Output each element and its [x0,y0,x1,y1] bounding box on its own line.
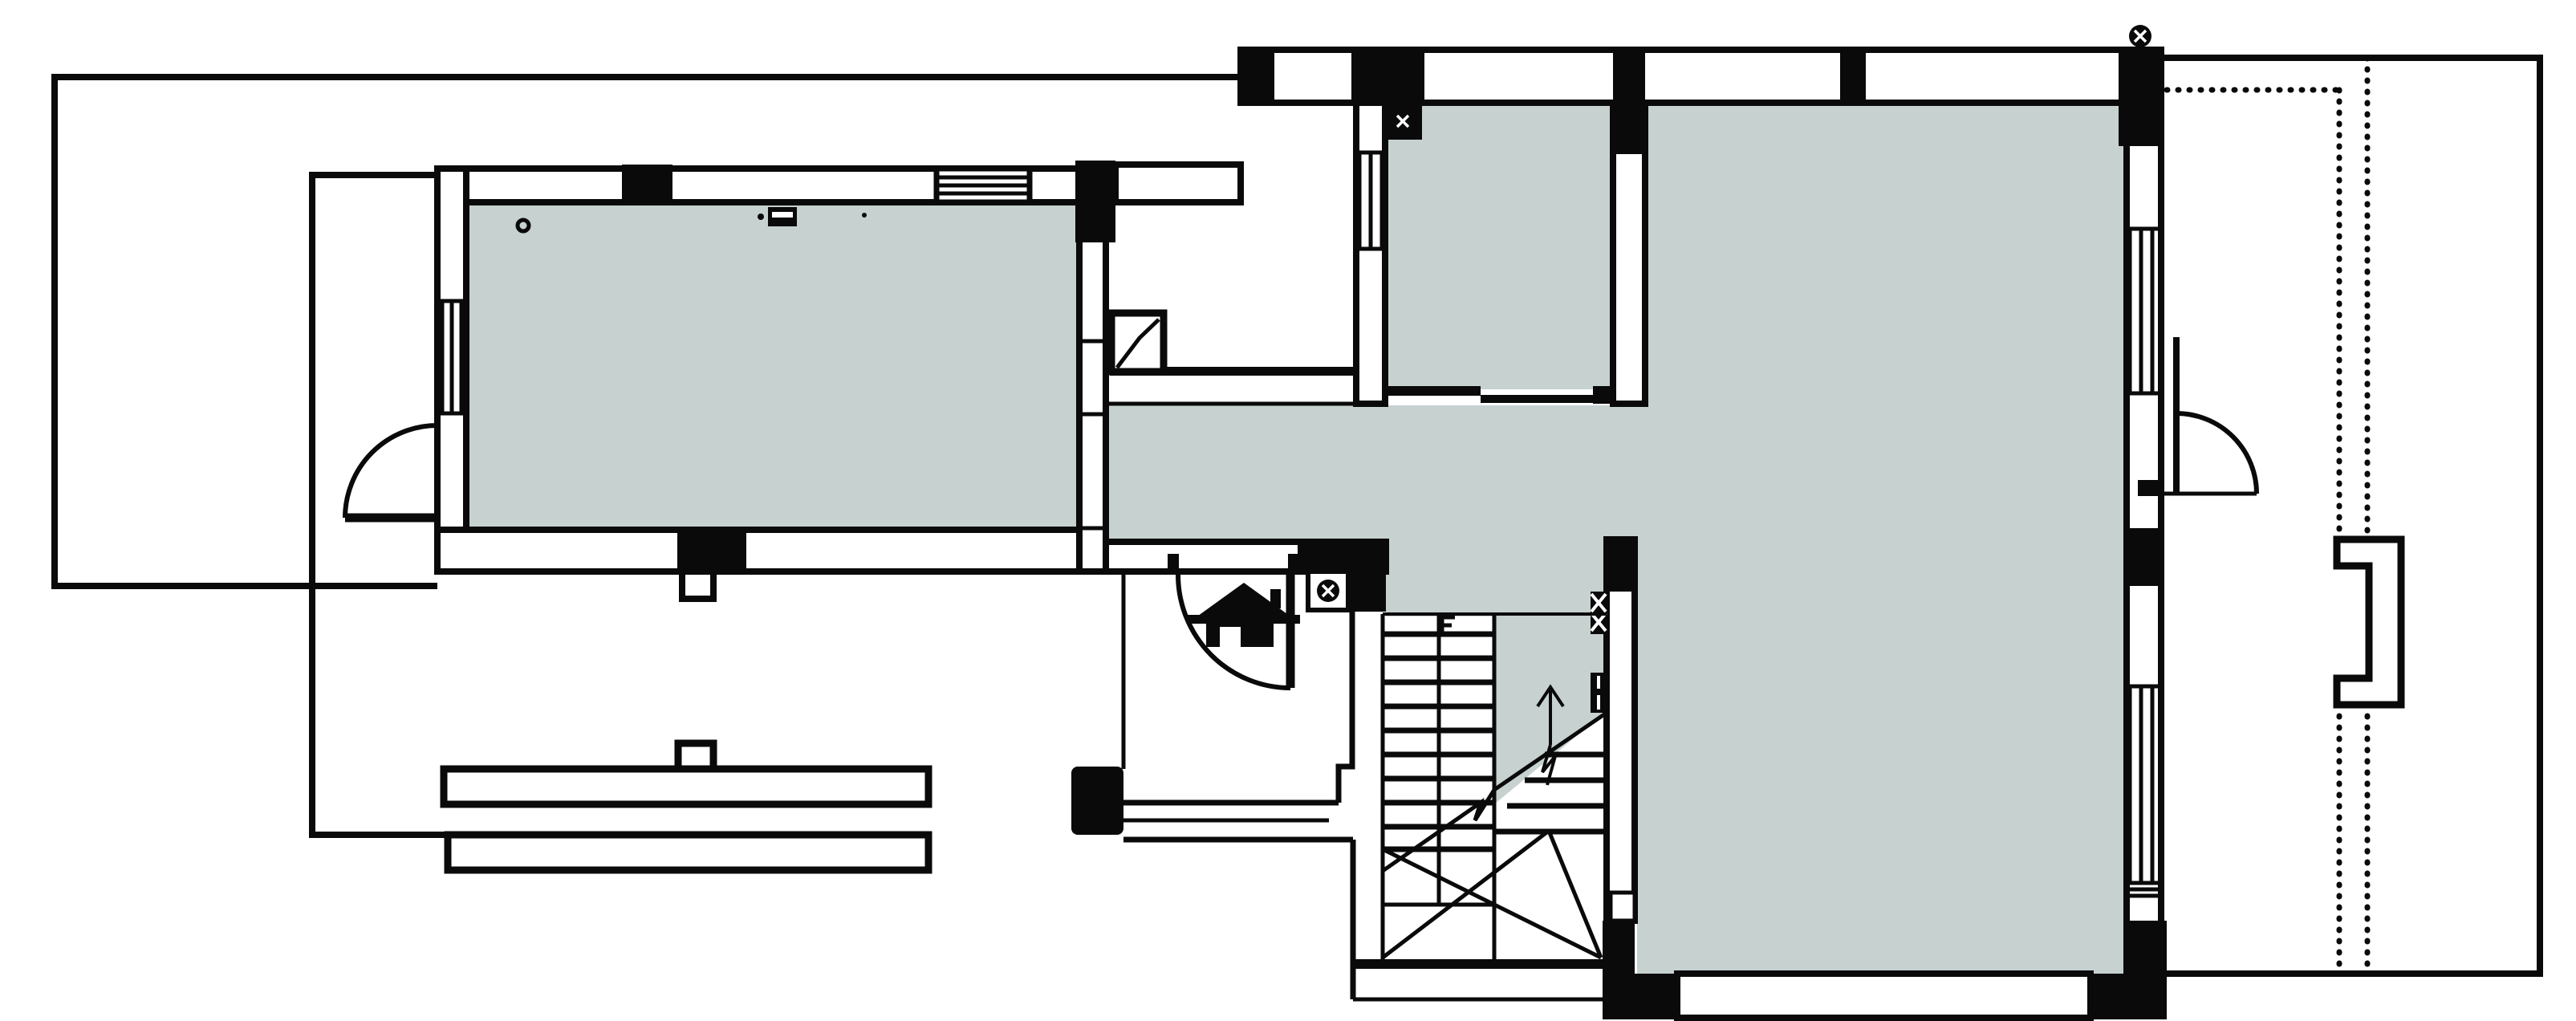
window-stair-wall-low-gap [1611,893,1635,921]
chimney-pilaster [2337,539,2401,705]
pier-ramp-end [1071,767,1123,835]
upper-middle-room-floor [1385,103,1613,389]
pier-band-left-corner [1241,50,1274,103]
roof-overhang-dashed-lines [2167,58,2367,974]
pier-bottom-left-a [1603,921,1635,974]
pier-band-b [1840,50,1866,103]
pier-left-room-bottom [677,530,746,572]
column-marker-icon [1392,110,1414,132]
door-swing-arc [345,425,437,518]
right-boundary-line [2161,58,2540,974]
terrace-notch [678,743,713,769]
door-jamb [2138,480,2159,496]
fireplace-shaft [1111,313,1164,372]
terrace-step-upper [444,769,928,804]
pier-right-wall-middle [2127,528,2161,586]
pier-band-right-corner [2119,50,2161,146]
column-marker-icon [2129,25,2151,47]
sliding-door-leaf [1481,395,1593,403]
right-room-bottom-wall [1677,974,2090,1018]
pier-left-room-corner [1075,161,1115,242]
sliding-door-end-post [1593,386,1613,404]
setback-boundary-line [312,175,448,835]
stair-hall-floor [1386,539,1607,616]
column-marker-icon [1308,572,1348,610]
pier-divider-top [1613,50,1645,154]
entrance-house-icon [1188,583,1300,647]
stair-bottom-wall [1353,959,1607,969]
upper-middle-room-left-wall [1356,103,1385,404]
handrail-start-symbol [1442,615,1455,636]
right-room-floor-upper [1645,103,2127,405]
floor-plan-page [0,0,2576,1021]
window-upper-middle-room [1356,153,1385,249]
fixture-dot-small [862,213,867,218]
top-mid-wall [1115,165,1241,202]
door-swing-arc [2176,413,2257,494]
pier-band-a [1351,50,1424,103]
upper-middle-room-bottom-wall [1385,386,1481,396]
pier-bottom-right-b [2127,921,2167,974]
door-left-exterior [345,425,437,518]
right-room-floor-lower [1637,404,2127,974]
pier-left-room-top [622,165,672,202]
door-jamb-left [1168,554,1179,572]
stair-right-wall [1607,539,1635,921]
corridor-floor [1106,405,1637,542]
left-room-floor [443,197,1079,535]
terrace-step-lower [448,835,928,870]
terrace-edge [444,743,928,870]
pier-stair-wall-top [1607,539,1635,592]
door-jamb-right [1288,554,1299,572]
window-left-room [437,301,466,413]
pier-bottom-right-a [2090,974,2167,1019]
left-room-bottom-wall [437,530,1079,572]
vestibule-right-wall [1339,612,1352,803]
window-top-hatched [937,169,1030,202]
window-stair-wall-slit [1591,673,1607,713]
floor-plan-canvas [0,0,2576,1021]
pier-foot-tab [682,572,713,599]
pier-bottom-left-b [1603,974,1677,1019]
